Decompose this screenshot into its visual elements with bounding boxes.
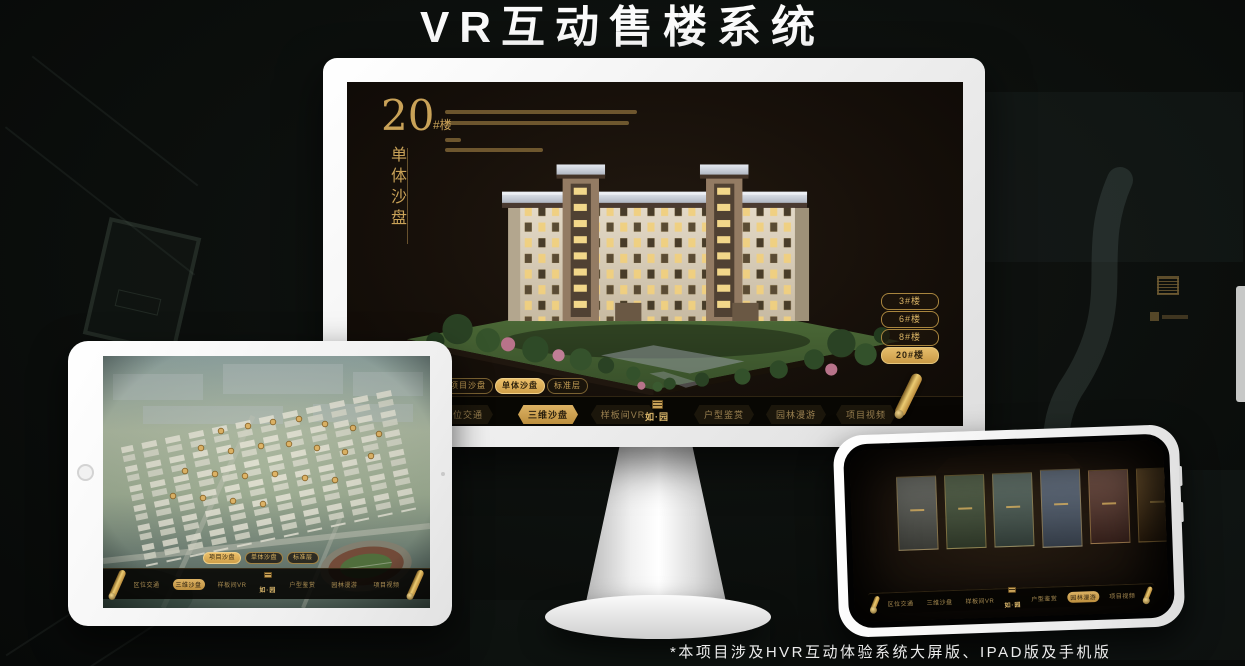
- phone: 区位交通 三维沙盘 样板间VR 如·园 户型鉴赏 园林漫游 项目视频: [833, 424, 1186, 638]
- phone-vr-scene: 区位交通 三维沙盘 样板间VR 如·园 户型鉴赏 园林漫游 项目视频: [849, 440, 1169, 623]
- scroll-icon[interactable]: [1142, 586, 1153, 603]
- scroll-icon[interactable]: [407, 569, 426, 599]
- phone-side-button[interactable]: [1180, 502, 1184, 522]
- tablet-nav-item-showroom-vr[interactable]: 样板间VR: [215, 579, 250, 590]
- seal-icon: [1008, 586, 1016, 592]
- phone-nav-item-garden-tour[interactable]: 园林漫游: [1067, 590, 1099, 602]
- nav-item-project-video[interactable]: 项目视频: [836, 405, 896, 424]
- tab-single-sandtable[interactable]: 单体沙盘: [495, 378, 545, 394]
- scroll-icon[interactable]: [870, 595, 881, 612]
- phone-screen: 区位交通 三维沙盘 样板间VR 如·园 户型鉴赏 园林漫游 项目视频: [843, 433, 1175, 628]
- brand-logo: 如·园: [259, 572, 276, 597]
- building-render[interactable]: [399, 140, 904, 395]
- background-brand-icon: [1157, 276, 1179, 295]
- phone-nav-item-project-video[interactable]: 项目视频: [1106, 589, 1138, 601]
- background-picture-frame: [83, 217, 202, 355]
- footnote: *本项目涉及HVR互动体验系统大屏版、IPAD版及手机版: [670, 641, 1111, 662]
- description-line: [445, 121, 629, 125]
- phone-nav-item-location[interactable]: 区位交通: [884, 597, 916, 609]
- tab-standard-floor[interactable]: 标准层: [547, 378, 588, 394]
- tablet: 项目沙盘 单体沙盘 标准层 区位交通 三维沙盘 样板间VR 如·园 户型鉴赏 园…: [68, 341, 452, 626]
- seal-icon: [652, 400, 663, 409]
- phone-nav-item-3d-sandtable[interactable]: 三维沙盘: [923, 595, 955, 607]
- tablet-view-tabs: 项目沙盘 单体沙盘 标准层: [203, 552, 319, 564]
- phone-nav-item-floorplans[interactable]: 户型鉴赏: [1028, 592, 1060, 604]
- floor-button-6[interactable]: 6#楼: [881, 311, 939, 328]
- tablet-nav-item-project-video[interactable]: 项目视频: [370, 579, 402, 590]
- tablet-screen: 项目沙盘 单体沙盘 标准层 区位交通 三维沙盘 样板间VR 如·园 户型鉴赏 园…: [103, 356, 430, 608]
- nav-item-3d-sandtable[interactable]: 三维沙盘: [518, 405, 578, 424]
- tablet-nav-item-garden-tour[interactable]: 园林漫游: [328, 579, 360, 590]
- tablet-nav-item-floorplans[interactable]: 户型鉴赏: [286, 579, 318, 590]
- scroll-icon[interactable]: [108, 569, 127, 599]
- tablet-camera-icon: [441, 472, 445, 476]
- headline-building-number: 20: [381, 94, 434, 138]
- tablet-nav-item-3d-sandtable[interactable]: 三维沙盘: [173, 579, 205, 590]
- background-road-line: [5, 126, 195, 275]
- stage: VR互动售楼系统 20 #楼 单体沙盘: [0, 0, 1245, 666]
- brand-logo: 如·园: [645, 400, 669, 423]
- nav-item-garden-tour[interactable]: 园林漫游: [766, 405, 826, 424]
- background-brand-text: [1162, 315, 1188, 319]
- monitor-stand-neck: [586, 446, 726, 602]
- background-river: [990, 60, 1245, 460]
- tablet-bottom-nav: 区位交通 三维沙盘 样板间VR 如·园 户型鉴赏 园林漫游 项目视频: [103, 568, 430, 599]
- nav-item-floorplans[interactable]: 户型鉴赏: [694, 405, 754, 424]
- monitor-stand-base: [545, 595, 771, 639]
- brand-logo: 如·园: [1004, 586, 1022, 612]
- floor-button-20[interactable]: 20#楼: [881, 347, 939, 364]
- seal-icon: [264, 572, 272, 578]
- background-card-edge: [1236, 286, 1245, 402]
- tablet-nav-item-location[interactable]: 区位交通: [131, 579, 163, 590]
- tablet-tab-standard-floor[interactable]: 标准层: [287, 552, 319, 564]
- phone-side-button[interactable]: [1179, 466, 1183, 486]
- tablet-home-button[interactable]: [77, 464, 94, 481]
- floor-button-8[interactable]: 8#楼: [881, 329, 939, 346]
- tablet-tab-single-sandtable[interactable]: 单体沙盘: [245, 552, 283, 564]
- tablet-tab-project-sandtable[interactable]: 项目沙盘: [203, 552, 241, 564]
- page-title: VR互动售楼系统: [0, 2, 1245, 54]
- floor-button-3[interactable]: 3#楼: [881, 293, 939, 310]
- phone-nav-item-showroom-vr[interactable]: 样板间VR: [962, 594, 997, 606]
- description-line: [445, 110, 637, 114]
- background-brand-logo: [1150, 312, 1159, 321]
